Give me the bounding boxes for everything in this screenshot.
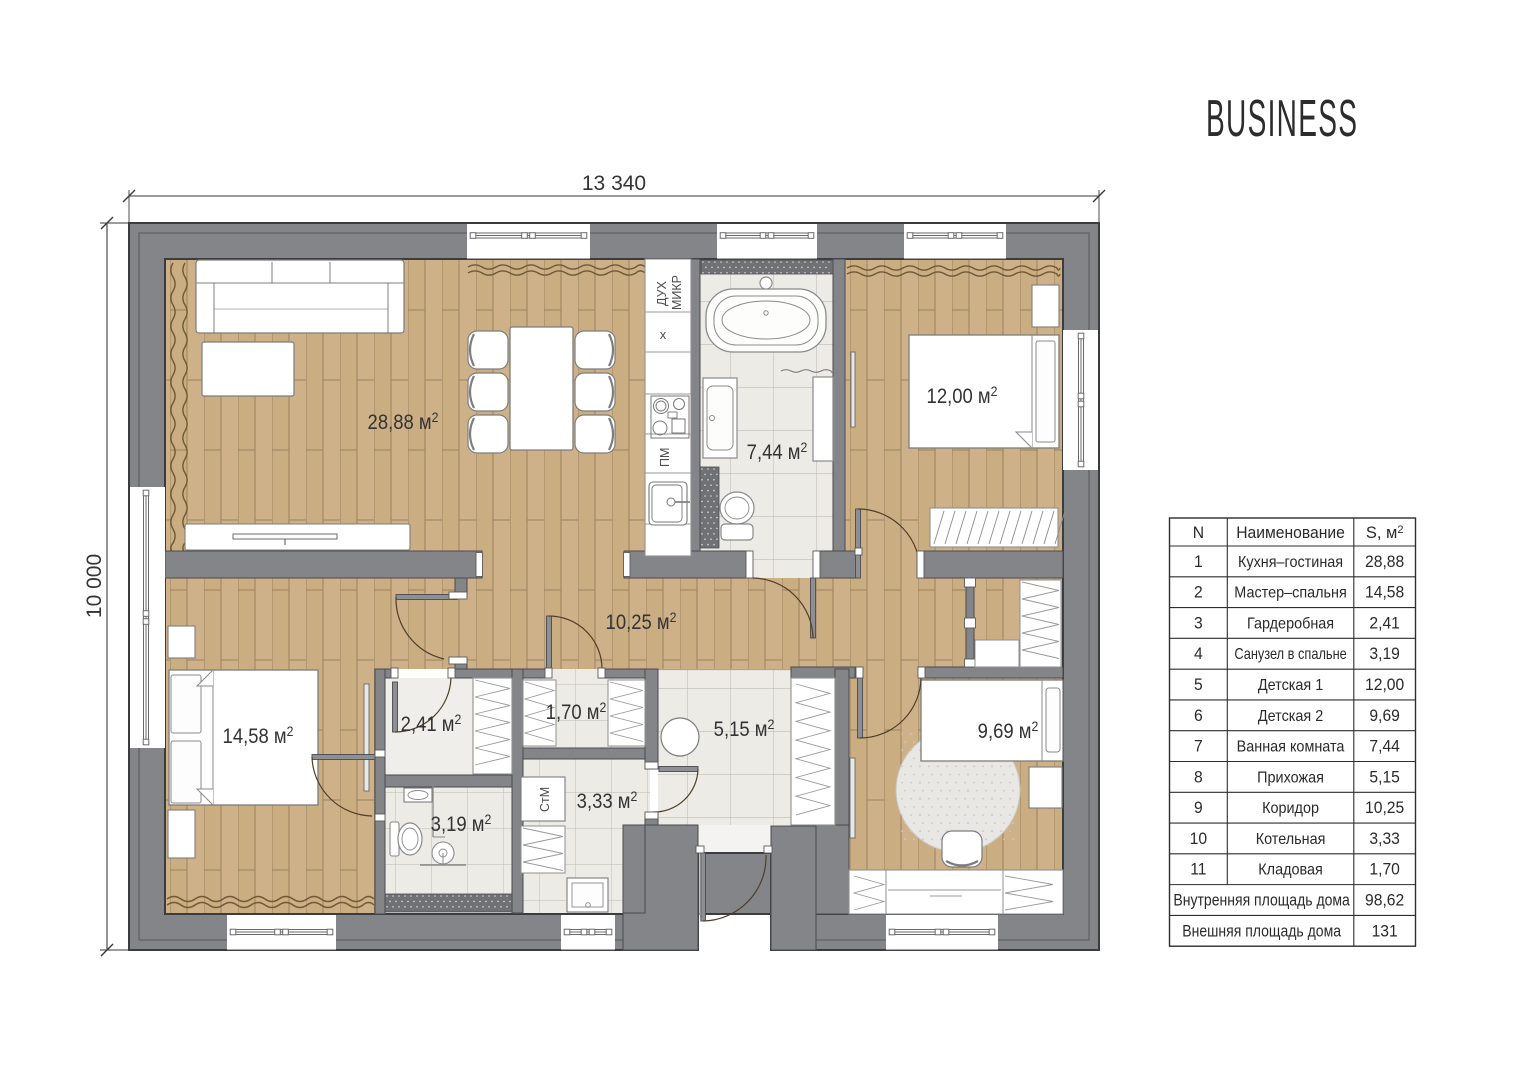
svg-text:7: 7 [1194,737,1203,755]
svg-text:СтМ: СтМ [538,787,552,812]
svg-text:9,69 м2: 9,69 м2 [978,718,1039,743]
svg-text:28,88: 28,88 [1365,553,1404,571]
svg-text:11: 11 [1190,860,1206,878]
svg-text:10,25: 10,25 [1365,799,1404,817]
svg-text:8: 8 [1194,768,1203,786]
svg-text:131: 131 [1372,922,1398,940]
svg-text:14,58: 14,58 [1365,583,1404,601]
svg-text:Прихожая: Прихожая [1257,769,1324,787]
svg-text:4: 4 [1194,645,1203,663]
svg-text:1,70: 1,70 [1369,860,1400,878]
svg-text:2,41 м2: 2,41 м2 [401,711,462,736]
svg-text:28,88 м2: 28,88 м2 [368,409,439,434]
svg-text:12,00: 12,00 [1365,676,1404,694]
svg-text:Внешняя площадь дома: Внешняя площадь дома [1182,922,1341,940]
svg-text:7,44 м2: 7,44 м2 [747,439,808,464]
svg-text:2: 2 [1194,583,1203,601]
svg-text:10 000: 10 000 [83,554,106,618]
svg-text:Наименование: Наименование [1236,524,1345,542]
svg-text:Внутренняя площадь дома: Внутренняя площадь дома [1173,892,1350,910]
svg-text:9,69: 9,69 [1369,706,1400,724]
svg-text:3,19: 3,19 [1369,645,1400,663]
svg-text:7,44: 7,44 [1369,737,1400,755]
svg-text:ПМ: ПМ [658,448,672,467]
svg-text:х: х [660,327,667,342]
svg-text:Ванная комната: Ванная комната [1237,738,1345,756]
svg-text:N: N [1193,524,1204,542]
svg-text:Мастер–спальня: Мастер–спальня [1234,584,1346,602]
svg-text:Санузел в спальне: Санузел в спальне [1234,646,1346,664]
svg-text:5,15: 5,15 [1369,768,1400,786]
svg-text:9: 9 [1194,799,1203,817]
svg-text:Детская 2: Детская 2 [1258,707,1323,725]
svg-text:14,58 м2: 14,58 м2 [223,723,294,748]
svg-text:Гардеробная: Гардеробная [1247,615,1334,633]
svg-text:1: 1 [1194,553,1203,571]
svg-text:10: 10 [1190,830,1207,848]
svg-text:5: 5 [1194,676,1203,694]
svg-text:12,00 м2: 12,00 м2 [927,383,998,408]
svg-text:2,41: 2,41 [1369,614,1400,632]
svg-text:1,70 м2: 1,70 м2 [546,699,607,724]
svg-text:13 340: 13 340 [582,172,646,195]
svg-text:98,62: 98,62 [1365,891,1404,909]
svg-text:5,15 м2: 5,15 м2 [714,716,775,741]
svg-text:Коридор: Коридор [1262,800,1319,818]
svg-text:10,25 м2: 10,25 м2 [606,609,677,634]
svg-text:3: 3 [1194,614,1203,632]
svg-text:Кухня–гостиная: Кухня–гостиная [1238,553,1343,571]
svg-text:3,33: 3,33 [1369,830,1400,848]
svg-text:6: 6 [1194,706,1203,724]
svg-text:3,19 м2: 3,19 м2 [431,811,492,836]
svg-text:Детская 1: Детская 1 [1258,676,1323,694]
svg-text:МИКР: МИКР [670,275,684,310]
svg-text:Котельная: Котельная [1256,830,1326,848]
svg-text:3,33 м2: 3,33 м2 [577,788,638,813]
svg-text:BUSINESS: BUSINESS [1206,89,1358,147]
svg-text:Кладовая: Кладовая [1258,861,1323,879]
svg-text:ДУХ: ДУХ [655,280,669,306]
